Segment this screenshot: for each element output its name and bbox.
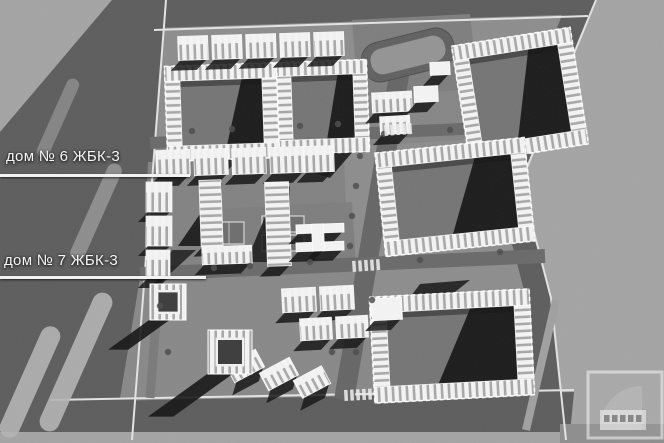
label-house-6-underline bbox=[0, 174, 190, 177]
site-plan-rendering: дом № 6 ЖБК-3 дом № 7 ЖБК-3 bbox=[0, 0, 664, 443]
label-house-7: дом № 7 ЖБК-3 bbox=[4, 252, 118, 269]
masterplan-canvas bbox=[0, 0, 664, 443]
label-house-6: дом № 6 ЖБК-3 bbox=[6, 148, 120, 165]
label-house-7-underline bbox=[0, 276, 206, 279]
grain-overlay bbox=[0, 0, 664, 443]
